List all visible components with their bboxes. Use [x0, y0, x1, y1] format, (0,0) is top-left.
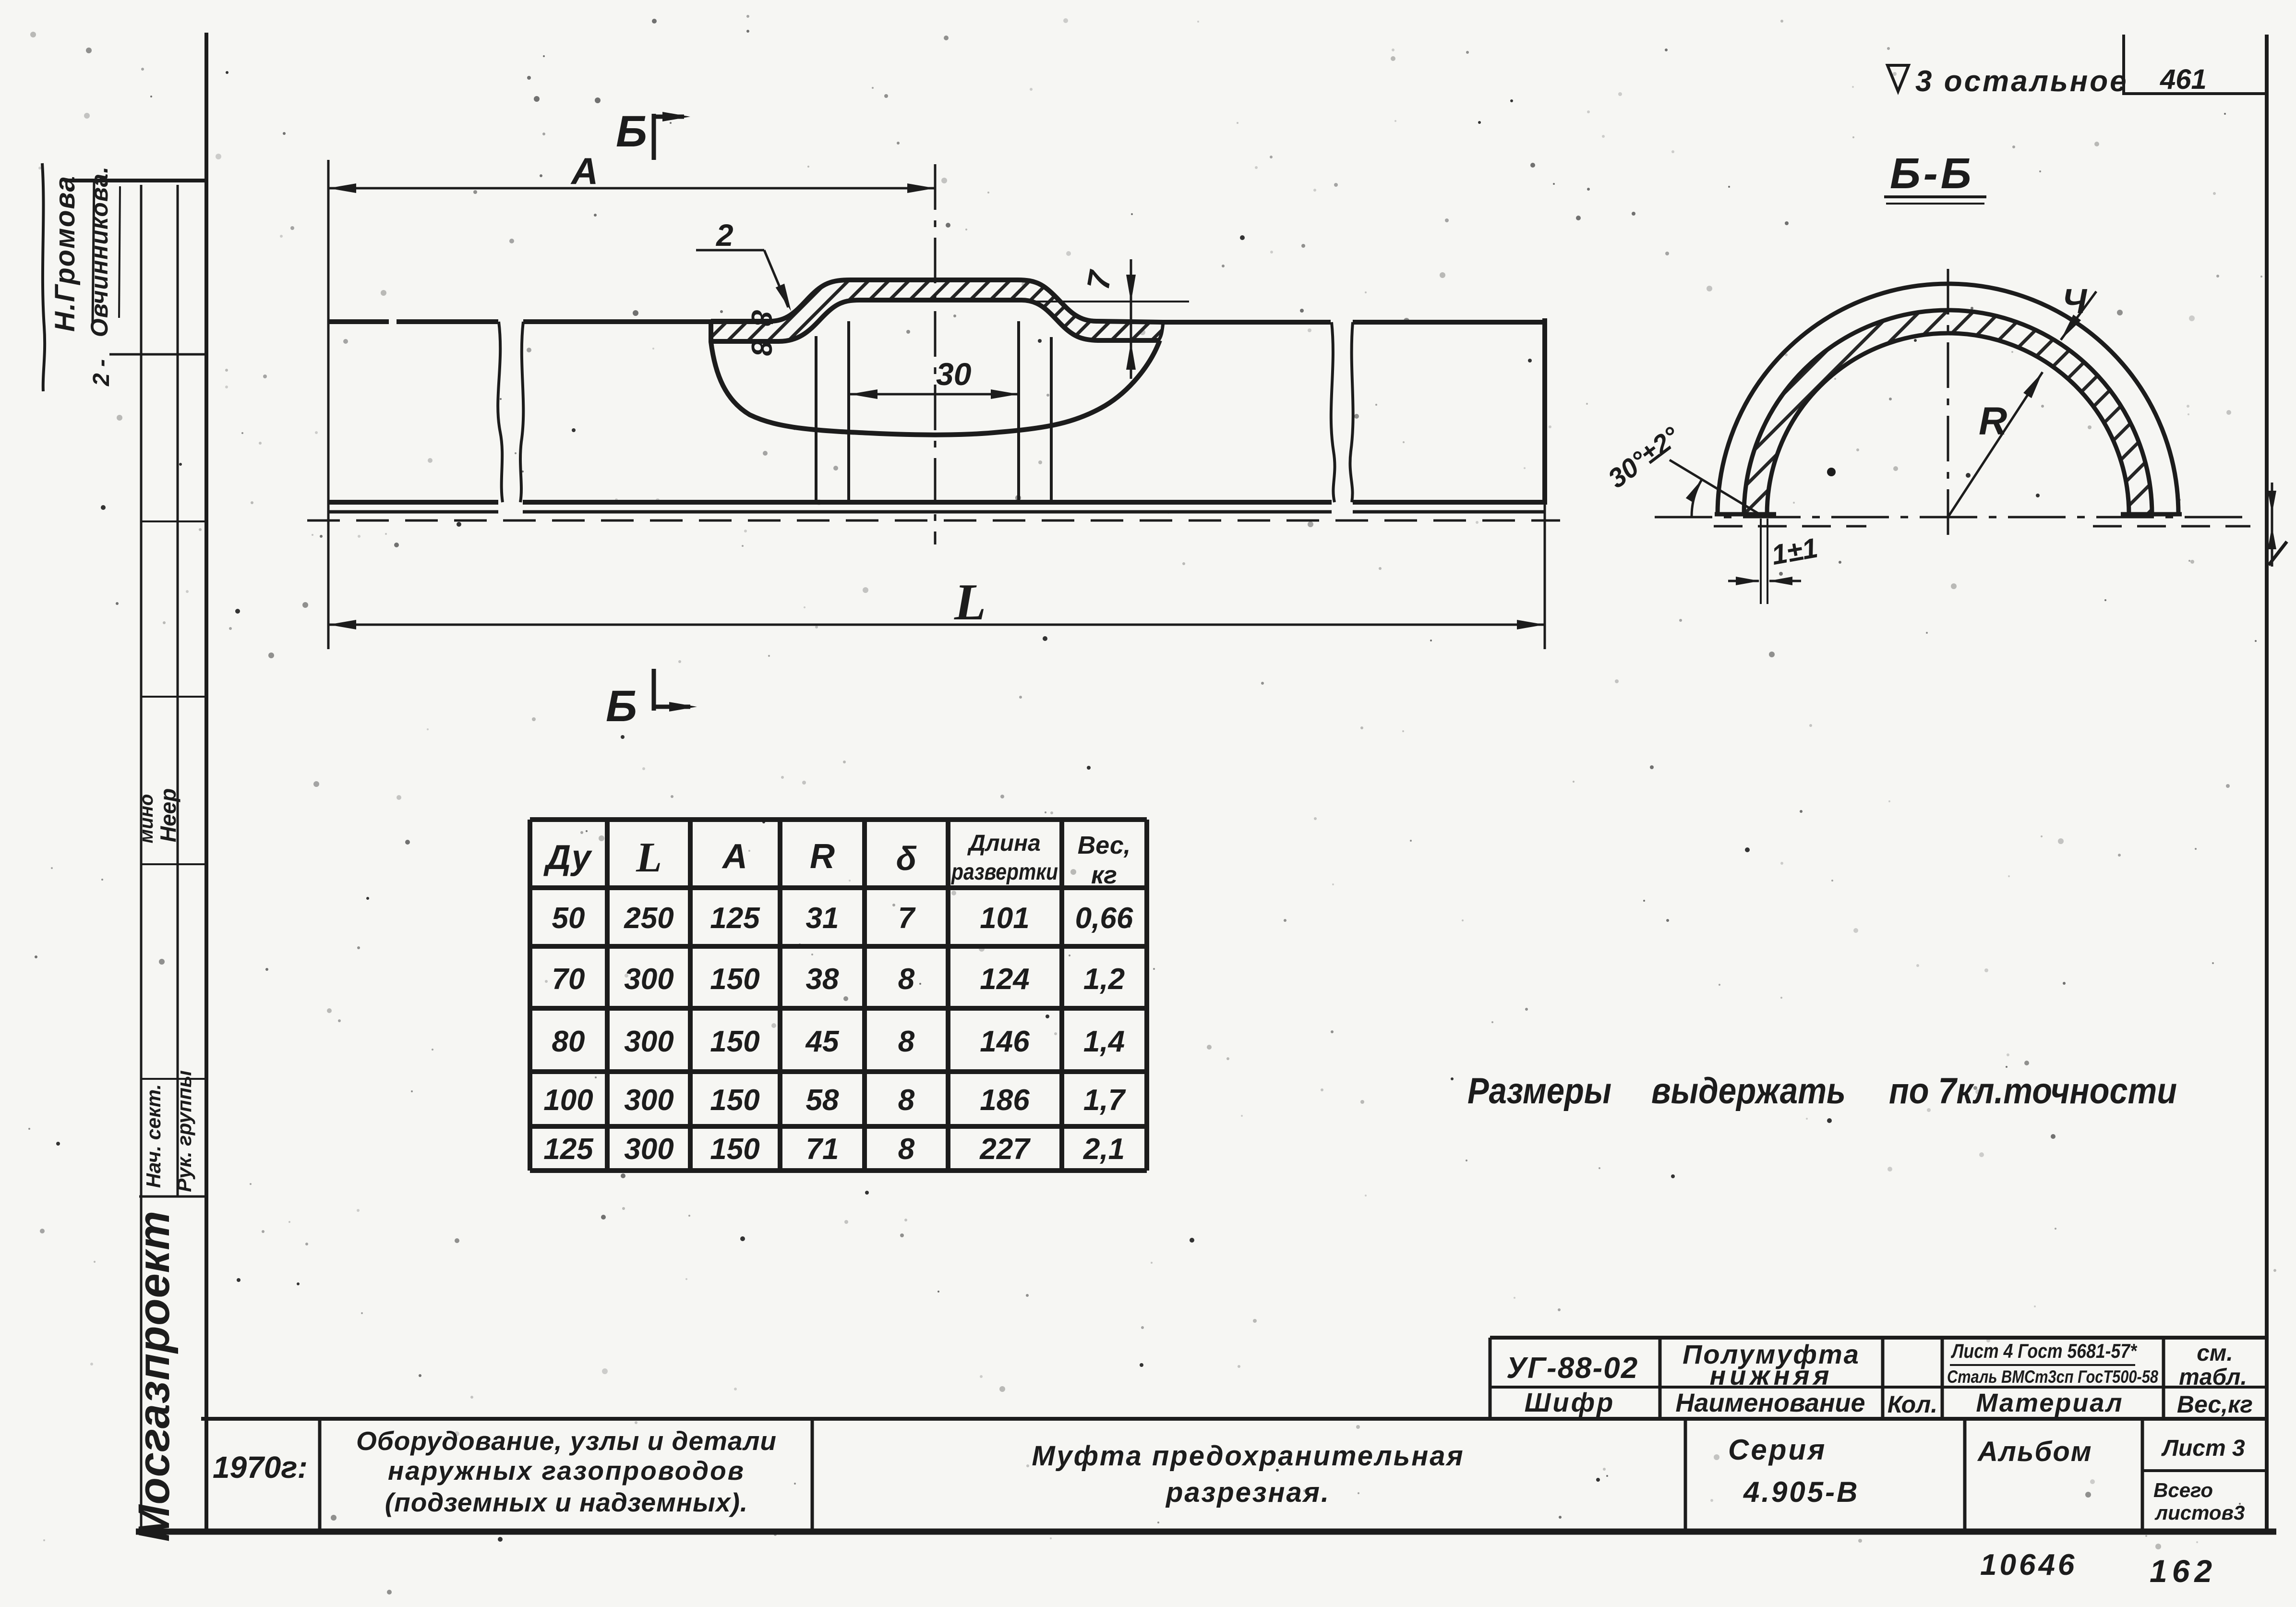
svg-text:Альбом: Альбом [1977, 1436, 2092, 1467]
svg-text:Неер: Неер [156, 788, 180, 842]
svg-text:10646: 10646 [1980, 1548, 2077, 1582]
svg-text:L: L [636, 834, 662, 881]
svg-text:186: 186 [980, 1084, 1030, 1117]
svg-text:31: 31 [806, 902, 839, 935]
svg-text:по 7кл.точности: по 7кл.точности [1889, 1071, 2177, 1112]
svg-text:Лист 3: Лист 3 [2161, 1436, 2245, 1461]
svg-text:124: 124 [980, 963, 1029, 996]
svg-text:Вес,кг: Вес,кг [2177, 1391, 2253, 1418]
svg-text:300: 300 [624, 1084, 673, 1117]
svg-text:2,1: 2,1 [1083, 1133, 1125, 1166]
svg-text:Муфта предохранительная: Муфта предохранительная [1032, 1440, 1464, 1472]
svg-text:развертки: развертки [950, 859, 1058, 885]
svg-text:Наименование: Наименование [1675, 1389, 1865, 1417]
svg-text:45: 45 [805, 1025, 840, 1058]
svg-text:Ду: Ду [543, 838, 593, 877]
svg-text:Серия: Серия [1728, 1434, 1827, 1466]
svg-text:4.905-В: 4.905-В [1743, 1476, 1859, 1508]
svg-text:листов3: листов3 [2154, 1501, 2245, 1524]
svg-text:Сталь ВМСт3сп ГосТ500-58: Сталь ВМСт3сп ГосТ500-58 [1947, 1367, 2158, 1387]
svg-text:см.: см. [2197, 1341, 2233, 1366]
svg-text:1970г:: 1970г: [213, 1450, 308, 1485]
svg-text:8: 8 [898, 963, 915, 996]
svg-text:Всего: Всего [2153, 1479, 2213, 1501]
svg-text:8: 8 [745, 339, 778, 356]
svg-text:101: 101 [980, 902, 1029, 935]
svg-text:Вес,: Вес, [1078, 832, 1130, 859]
svg-text:Кол.: Кол. [1887, 1391, 1937, 1418]
svg-text:Овчинникова.: Овчинникова. [86, 166, 113, 337]
svg-text:146: 146 [980, 1025, 1030, 1058]
svg-text:L: L [954, 574, 986, 631]
svg-text:Ч: Ч [2062, 282, 2088, 321]
svg-text:2: 2 [716, 218, 733, 253]
svg-text:300: 300 [624, 963, 673, 996]
svg-text:80: 80 [552, 1025, 585, 1058]
svg-text:R: R [810, 837, 835, 876]
svg-text:300: 300 [624, 1025, 673, 1058]
svg-text:250: 250 [624, 902, 673, 935]
svg-text:50: 50 [552, 902, 585, 935]
svg-text:3 остальное: 3 остальное [1915, 65, 2128, 98]
svg-text:150: 150 [710, 1133, 759, 1166]
svg-text:71: 71 [806, 1133, 839, 1166]
svg-text:125: 125 [710, 902, 760, 935]
svg-text:1,4: 1,4 [1083, 1025, 1125, 1058]
svg-text:7: 7 [898, 902, 916, 935]
svg-text:Н.Громова: Н.Громова [49, 175, 81, 332]
svg-text:(подземных и надземных).: (подземных и надземных). [385, 1487, 748, 1517]
svg-text:УГ-88-02: УГ-88-02 [1506, 1352, 1638, 1385]
svg-text:Б-Б: Б-Б [1890, 150, 1974, 198]
svg-text:58: 58 [806, 1084, 839, 1117]
svg-text:Лист 4 Гост 5681-57*: Лист 4 Гост 5681-57* [1950, 1340, 2137, 1362]
svg-text:227: 227 [979, 1133, 1031, 1166]
svg-text:Оборудование, узлы и детали: Оборудование, узлы и детали [356, 1426, 777, 1456]
svg-text:8: 8 [898, 1133, 915, 1166]
svg-text:Материал: Материал [1976, 1389, 2123, 1417]
svg-text:Длина: Длина [967, 831, 1041, 856]
svg-text:А: А [570, 150, 598, 192]
svg-text:нижняя: нижняя [1709, 1360, 1833, 1390]
svg-text:R: R [1979, 399, 2007, 443]
svg-text:461: 461 [2160, 64, 2207, 95]
svg-text:Б: Б [616, 107, 647, 156]
svg-text:0,66: 0,66 [1075, 902, 1133, 935]
svg-text:125: 125 [543, 1133, 594, 1166]
svg-text:150: 150 [710, 1084, 759, 1117]
svg-text:Шифр: Шифр [1525, 1387, 1615, 1417]
svg-text:8: 8 [898, 1084, 915, 1117]
svg-text:150: 150 [710, 963, 759, 996]
svg-text:8: 8 [898, 1025, 915, 1058]
svg-text:Размеры: Размеры [1467, 1071, 1611, 1112]
svg-text:А: А [721, 837, 747, 876]
svg-text:1,2: 1,2 [1083, 963, 1125, 996]
svg-text:δ: δ [896, 840, 917, 877]
svg-text:38: 38 [806, 963, 839, 996]
svg-text:Нач. сект.: Нач. сект. [142, 1084, 165, 1188]
svg-text:8: 8 [745, 310, 778, 326]
svg-text:Б: Б [606, 682, 637, 731]
svg-text:300: 300 [624, 1133, 673, 1166]
svg-text:выдержать: выдержать [1651, 1071, 1846, 1112]
svg-text:разрезная.: разрезная. [1165, 1477, 1330, 1508]
svg-text:150: 150 [710, 1025, 759, 1058]
svg-text:табл.: табл. [2179, 1365, 2247, 1390]
svg-text:2 -: 2 - [89, 359, 114, 387]
svg-text:кг: кг [1091, 861, 1117, 889]
svg-text:1,7: 1,7 [1083, 1084, 1126, 1117]
svg-text:70: 70 [552, 963, 585, 996]
svg-text:Рук. группы: Рук. группы [173, 1070, 195, 1192]
svg-text:Мосгазпроект: Мосгазпроект [130, 1210, 179, 1542]
svg-text:наружных газопроводов: наружных газопроводов [388, 1456, 745, 1486]
svg-text:100: 100 [543, 1084, 593, 1117]
svg-text:30: 30 [936, 356, 972, 392]
svg-text:мино: мино [136, 794, 157, 844]
svg-text:162: 162 [2150, 1553, 2217, 1589]
